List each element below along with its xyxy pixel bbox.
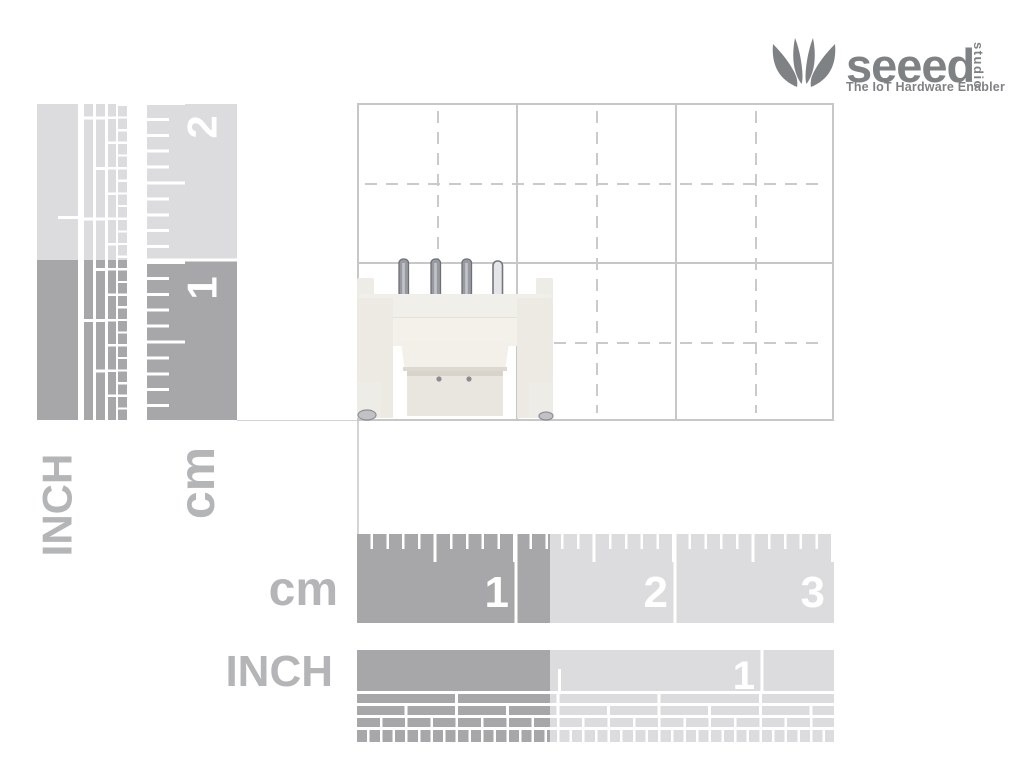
- left-inch-sixteenths-column: [108, 104, 116, 420]
- product-connector-image: [355, 254, 555, 422]
- bottom-inch-quarters-row: [357, 694, 834, 703]
- grid-dash-vline-3: [755, 111, 757, 413]
- bottom-inch-sixteenths-row: [357, 718, 834, 727]
- logo-leaf-icon: [770, 36, 838, 88]
- product-photo-canvas: seeed studio The IoT Hardware Enabler: [0, 0, 1024, 779]
- logo-tagline: The IoT Hardware Enabler: [846, 80, 1005, 94]
- left-inch-eighths-column: [96, 104, 105, 420]
- bottom-cm-ruler-label: cm: [220, 566, 338, 614]
- left-inch-ruler-label: INCH: [27, 440, 87, 570]
- bottom-inch-mark-1: 1: [357, 654, 755, 699]
- bottom-cm-mark-3: 3: [357, 568, 825, 618]
- bottom-inch-eighths-row: [357, 706, 834, 715]
- bottom-inch-thirtyseconds-row: [357, 730, 834, 742]
- grid-extension-vline: [357, 421, 359, 534]
- bottom-inch-ruler-label: INCH: [215, 650, 333, 694]
- grid-dash-vline-2: [596, 111, 598, 413]
- left-cm-ruler-bar: [147, 104, 237, 420]
- seeed-logo: seeed studio The IoT Hardware Enabler: [770, 28, 1010, 108]
- grid-extension-hline: [237, 420, 357, 422]
- left-cm-mark-2: 2: [185, 107, 221, 147]
- left-inch-ruler-bar: [37, 104, 78, 420]
- connector-body: [357, 278, 553, 420]
- left-inch-quarters-column: [84, 104, 93, 420]
- left-inch-thirtyseconds-column: [118, 104, 127, 420]
- left-cm-mark-1: 1: [185, 268, 221, 308]
- left-cm-ruler-label: cm: [167, 438, 227, 528]
